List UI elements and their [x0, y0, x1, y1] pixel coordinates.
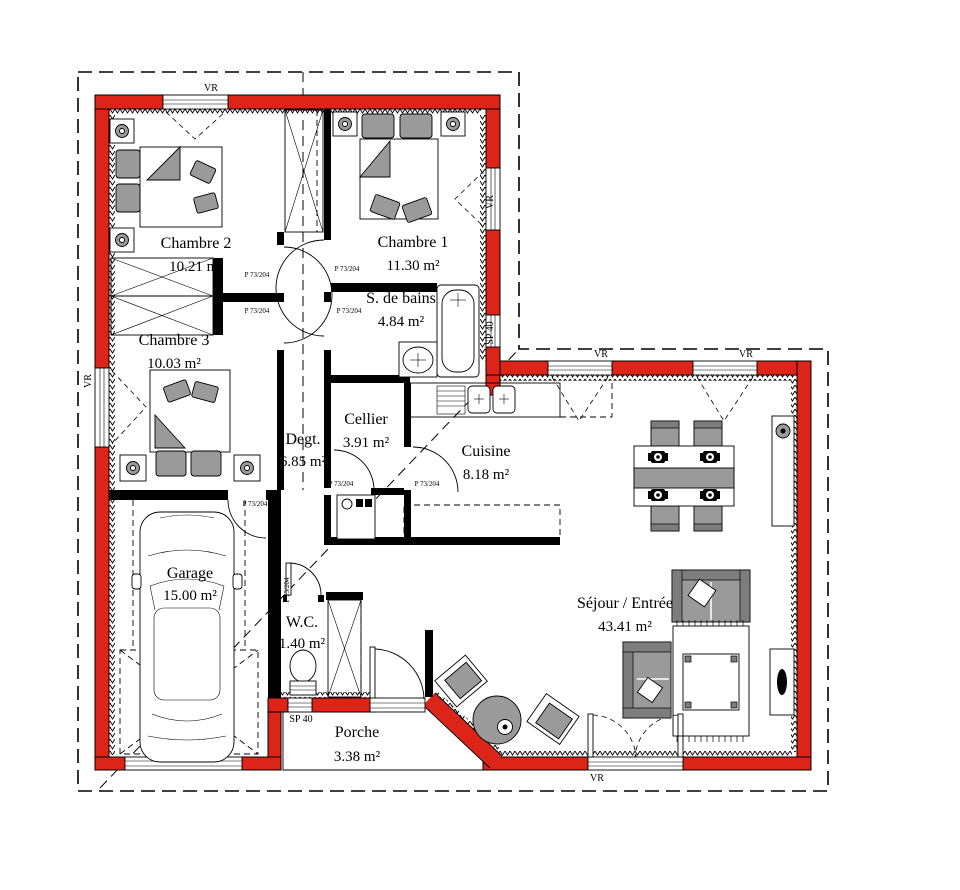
vr-label-sejour-2: VR	[739, 349, 753, 360]
closet-hallway-top	[285, 110, 323, 232]
vr-label-chambre1: VR	[485, 195, 496, 209]
area-cellier: 3.91 m²	[343, 435, 390, 451]
area-chambre3: 10.03 m²	[147, 356, 201, 372]
area-sejour: 43.41 m²	[598, 619, 652, 635]
doorspec-cuisine: P 73/204	[415, 480, 440, 488]
doorspec-chambre2-b: P 73/204	[245, 307, 270, 315]
area-chambre2: 10.21 m²	[169, 259, 223, 275]
area-porche: 3.38 m²	[334, 749, 381, 765]
side-table	[473, 696, 521, 744]
doorspec-wc: P 73/204	[283, 577, 291, 602]
cabinet-right	[772, 416, 794, 526]
label-chambre3: Chambre 3	[139, 332, 210, 349]
window-chambre3-left	[95, 368, 146, 447]
french-window-sejour-1	[548, 361, 612, 421]
furniture-chambre1	[333, 112, 465, 223]
label-wc: W.C.	[286, 614, 318, 631]
door-chambre1	[276, 240, 324, 336]
floor-plan-page: Chambre 2 10.21 m² Chambre 1 11.30 m² Ch…	[0, 0, 960, 890]
window-chambre2-top	[163, 95, 228, 139]
door-wc	[286, 563, 321, 595]
closet-entry	[328, 600, 361, 697]
label-chambre1: Chambre 1	[378, 234, 449, 251]
area-wc: 1.40 m²	[279, 636, 326, 652]
toilet	[290, 650, 316, 695]
rug	[673, 620, 749, 742]
label-sejour: Séjour / Entrée	[577, 595, 673, 612]
doorspec-chambre1-a: P 73/204	[335, 265, 360, 273]
sofa-left	[623, 642, 671, 718]
door-entrance	[370, 647, 425, 712]
floor-plan-canvas: Chambre 2 10.21 m² Chambre 1 11.30 m² Ch…	[0, 0, 960, 890]
armchair-2	[527, 694, 579, 745]
tv-unit	[770, 649, 794, 715]
furniture-chambre3	[120, 370, 260, 481]
area-cuisine: 8.18 m²	[463, 467, 510, 483]
vr-label-left: VR	[83, 374, 94, 388]
car	[132, 512, 242, 762]
vr-label-sejour-1: VR	[594, 349, 608, 360]
doorspec-cellier: P 73/204	[329, 480, 354, 488]
label-cellier: Cellier	[344, 411, 388, 428]
dining-set	[634, 421, 734, 531]
vr-label-top: VR	[204, 83, 218, 94]
french-window-sejour-2	[693, 361, 757, 421]
area-degagement: 6.85 m²	[280, 454, 327, 470]
washer	[337, 495, 375, 539]
furniture-chambre2	[110, 119, 222, 252]
area-garage: 15.00 m²	[163, 588, 217, 604]
doorspec-chambre2-a: P 73/204	[245, 271, 270, 279]
label-porche: Porche	[335, 724, 379, 741]
vr-label-sejour-south: VR	[590, 773, 604, 784]
doorspec-garage: P 73/204	[243, 500, 268, 508]
sejour-furniture	[435, 416, 794, 744]
area-chambre1: 11.30 m²	[386, 258, 440, 274]
doorspec-chambre1-b: P 73/204	[337, 307, 362, 315]
label-cuisine: Cuisine	[462, 443, 511, 460]
label-garage: Garage	[167, 565, 213, 582]
label-bathroom: S. de bains	[366, 290, 436, 307]
kitchen-fixtures	[404, 383, 612, 538]
sp40-label-wc: SP 40	[289, 714, 312, 725]
label-degagement: Degt.	[285, 431, 320, 448]
label-chambre2: Chambre 2	[161, 235, 232, 252]
sp40-label-bathroom: SP 40	[485, 321, 496, 344]
area-bathroom: 4.84 m²	[378, 314, 425, 330]
window-wc-south	[288, 698, 312, 712]
french-door-sejour-south	[588, 714, 683, 770]
sofa-top	[672, 570, 750, 622]
